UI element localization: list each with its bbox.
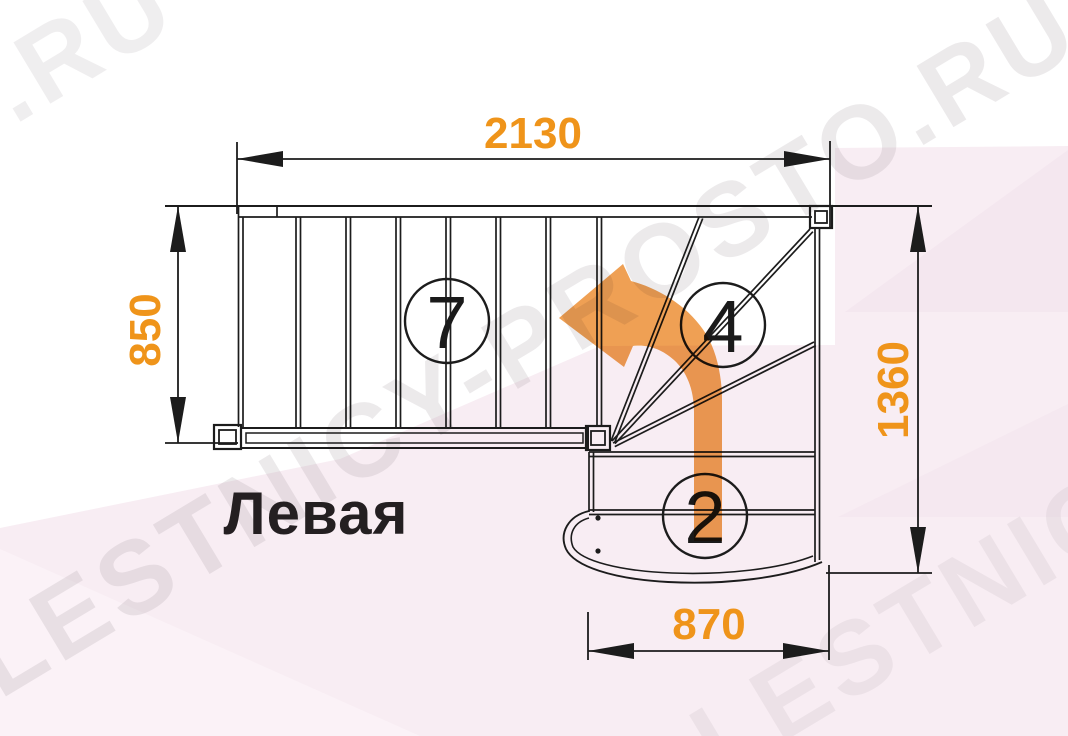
dimension-value-right: 1360: [869, 341, 918, 439]
staircase-plan-drawing: LESTNICY-PROSTO.RU O.RU LESTNIC: [0, 0, 1068, 736]
upper-flight-count: 7: [426, 281, 467, 364]
staircase-plan-page: LESTNICY-PROSTO.RU O.RU LESTNIC: [0, 0, 1068, 736]
bullnose-dowel-dot: [595, 515, 600, 520]
dimension-value-top: 2130: [484, 109, 582, 158]
dimension-value-bottom: 870: [672, 600, 745, 649]
dimension-value-left: 850: [121, 293, 170, 366]
plan-type-label: Левая: [224, 480, 409, 547]
bullnose-dowel-dot: [595, 548, 600, 553]
